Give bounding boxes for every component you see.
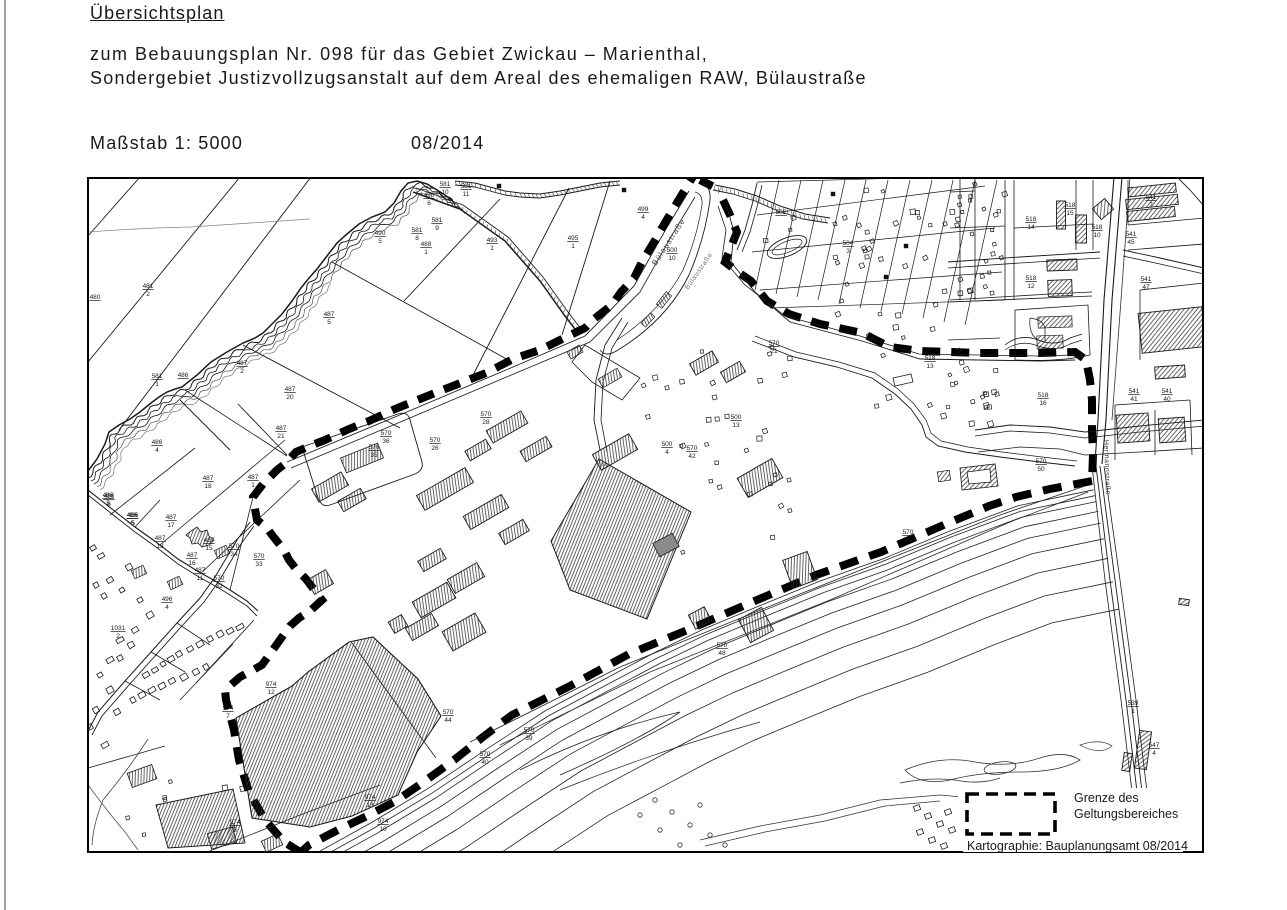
svg-text:41: 41	[1130, 396, 1138, 403]
svg-text:570: 570	[524, 727, 535, 734]
svg-text:570: 570	[381, 430, 392, 437]
svg-text:4: 4	[155, 447, 159, 454]
svg-text:Bülaustr.: Bülaustr.	[1249, 124, 1268, 151]
svg-text:10: 10	[379, 826, 387, 833]
svg-text:45: 45	[904, 537, 912, 544]
svg-text:504: 504	[843, 240, 854, 247]
svg-text:12: 12	[267, 689, 275, 696]
svg-text:487: 487	[276, 425, 287, 432]
svg-text:18: 18	[204, 483, 212, 490]
svg-text:48: 48	[718, 650, 726, 657]
svg-text:499: 499	[638, 206, 649, 213]
svg-text:487: 487	[285, 386, 296, 393]
svg-text:493: 493	[487, 237, 498, 244]
svg-text:4: 4	[165, 604, 169, 611]
svg-text:11: 11	[197, 575, 204, 582]
svg-text:495: 495	[568, 235, 579, 242]
svg-text:34: 34	[230, 551, 238, 558]
svg-text:4: 4	[1152, 750, 1156, 757]
svg-text:487: 487	[248, 474, 259, 481]
svg-text:518: 518	[1038, 392, 1049, 399]
svg-text:487: 487	[237, 360, 248, 367]
svg-text:541: 541	[1129, 388, 1140, 395]
svg-text:5: 5	[378, 238, 382, 245]
svg-text:570: 570	[1036, 458, 1047, 465]
svg-text:486: 486	[152, 439, 163, 446]
svg-text:581: 581	[152, 373, 163, 380]
svg-text:42: 42	[688, 453, 696, 460]
svg-text:570: 570	[254, 553, 265, 560]
svg-text:Bülaustraße: Bülaustraße	[684, 252, 715, 291]
svg-text:570: 570	[369, 444, 380, 451]
svg-text:502: 502	[776, 209, 787, 216]
svg-text:Geltungsbereiches: Geltungsbereiches	[1074, 807, 1178, 821]
svg-text:Kartographie: Bauplanungsamt 0: Kartographie: Bauplanungsamt 08/2014	[967, 839, 1188, 853]
svg-text:16: 16	[188, 560, 196, 567]
svg-text:974: 974	[365, 794, 376, 801]
svg-text:50: 50	[1037, 466, 1045, 473]
svg-text:487: 487	[203, 475, 214, 482]
svg-text:487: 487	[187, 552, 198, 559]
svg-text:486: 486	[104, 493, 115, 500]
svg-text:974: 974	[230, 819, 241, 826]
svg-text:974: 974	[223, 705, 234, 712]
svg-text:581: 581	[432, 217, 443, 224]
svg-text:36: 36	[382, 438, 390, 445]
svg-text:570: 570	[687, 445, 698, 452]
svg-text:21: 21	[770, 348, 778, 355]
svg-text:581: 581	[440, 181, 451, 188]
svg-text:5: 5	[327, 319, 331, 326]
svg-text:8: 8	[233, 827, 237, 834]
svg-text:2: 2	[116, 633, 120, 640]
svg-text:487: 487	[324, 311, 335, 318]
svg-text:15: 15	[1066, 210, 1074, 217]
svg-text:39: 39	[525, 735, 533, 742]
svg-text:47: 47	[1142, 284, 1150, 291]
svg-text:570: 570	[481, 411, 492, 418]
svg-text:500: 500	[662, 441, 673, 448]
svg-text:14: 14	[1027, 224, 1035, 231]
svg-text:2: 2	[146, 291, 150, 298]
svg-text:20: 20	[286, 394, 294, 401]
svg-text:1: 1	[490, 245, 494, 252]
svg-text:487: 487	[195, 567, 206, 574]
svg-text:518: 518	[1092, 224, 1103, 231]
svg-text:32: 32	[215, 583, 223, 590]
svg-text:16: 16	[1039, 400, 1047, 407]
svg-text:4: 4	[641, 214, 645, 221]
svg-text:487: 487	[155, 535, 166, 542]
svg-text:1031: 1031	[111, 625, 126, 632]
svg-text:518: 518	[1026, 216, 1037, 223]
svg-text:13: 13	[156, 543, 164, 550]
svg-text:487: 487	[204, 537, 215, 544]
svg-text:11: 11	[463, 191, 470, 198]
svg-text:547: 547	[1149, 742, 1160, 749]
svg-text:541: 541	[1126, 231, 1137, 238]
svg-text:9: 9	[435, 225, 439, 232]
svg-text:35: 35	[370, 452, 378, 459]
svg-text:539: 539	[1128, 700, 1139, 707]
svg-text:2: 2	[240, 368, 244, 375]
svg-text:518: 518	[1026, 275, 1037, 282]
svg-text:15: 15	[205, 545, 213, 552]
svg-text:6: 6	[427, 200, 431, 207]
svg-text:481: 481	[143, 283, 154, 290]
svg-text:496: 496	[162, 596, 173, 603]
svg-text:17: 17	[167, 522, 175, 529]
svg-text:10: 10	[1093, 232, 1101, 239]
svg-text:570: 570	[717, 642, 728, 649]
svg-text:488: 488	[421, 241, 432, 248]
svg-text:13: 13	[926, 363, 934, 370]
svg-text:518: 518	[925, 355, 936, 362]
svg-text:974: 974	[266, 681, 277, 688]
svg-text:974: 974	[378, 818, 389, 825]
svg-text:541: 541	[1146, 194, 1157, 201]
svg-text:3: 3	[846, 248, 850, 255]
svg-text:6: 6	[107, 501, 111, 508]
svg-text:581: 581	[461, 183, 472, 190]
svg-text:570: 570	[443, 709, 454, 716]
svg-text:500: 500	[731, 414, 742, 421]
svg-text:1: 1	[424, 249, 428, 256]
svg-text:570: 570	[480, 751, 491, 758]
svg-text:486: 486	[128, 512, 139, 519]
svg-text:480: 480	[90, 294, 101, 301]
svg-text:10: 10	[668, 255, 676, 262]
svg-text:570: 570	[430, 437, 441, 444]
svg-text:10: 10	[441, 189, 449, 196]
svg-text:490: 490	[375, 230, 386, 237]
svg-text:1: 1	[571, 243, 575, 250]
svg-text:8: 8	[415, 235, 419, 242]
svg-text:541: 541	[1162, 388, 1173, 395]
svg-text:Grenze des: Grenze des	[1074, 791, 1139, 805]
svg-text:1: 1	[155, 381, 159, 388]
svg-text:12: 12	[1027, 283, 1035, 290]
svg-text:570: 570	[769, 340, 780, 347]
svg-text:7: 7	[226, 713, 230, 720]
svg-text:7: 7	[1149, 202, 1153, 209]
svg-text:541: 541	[1141, 276, 1152, 283]
svg-text:40: 40	[1163, 396, 1171, 403]
svg-text:40: 40	[481, 759, 489, 766]
svg-text:Hermannstraße: Hermannstraße	[1102, 440, 1111, 495]
svg-text:581: 581	[412, 227, 423, 234]
svg-text:45: 45	[1127, 239, 1135, 246]
svg-text:21: 21	[277, 433, 285, 440]
svg-text:13: 13	[366, 802, 374, 809]
svg-text:570: 570	[903, 529, 914, 536]
svg-text:26: 26	[431, 445, 439, 452]
svg-text:4: 4	[665, 449, 669, 456]
svg-text:28: 28	[482, 419, 490, 426]
svg-text:33: 33	[255, 561, 263, 568]
svg-text:13: 13	[732, 422, 740, 429]
svg-text:1: 1	[251, 482, 255, 489]
svg-text:487: 487	[166, 514, 177, 521]
svg-text:44: 44	[444, 717, 452, 724]
svg-text:1: 1	[1131, 708, 1135, 715]
svg-text:486: 486	[178, 372, 189, 379]
svg-text:5: 5	[131, 520, 135, 527]
svg-text:570: 570	[229, 543, 240, 550]
svg-text:518: 518	[1065, 202, 1076, 209]
svg-text:570: 570	[214, 575, 225, 582]
svg-text:490: 490	[424, 192, 435, 199]
